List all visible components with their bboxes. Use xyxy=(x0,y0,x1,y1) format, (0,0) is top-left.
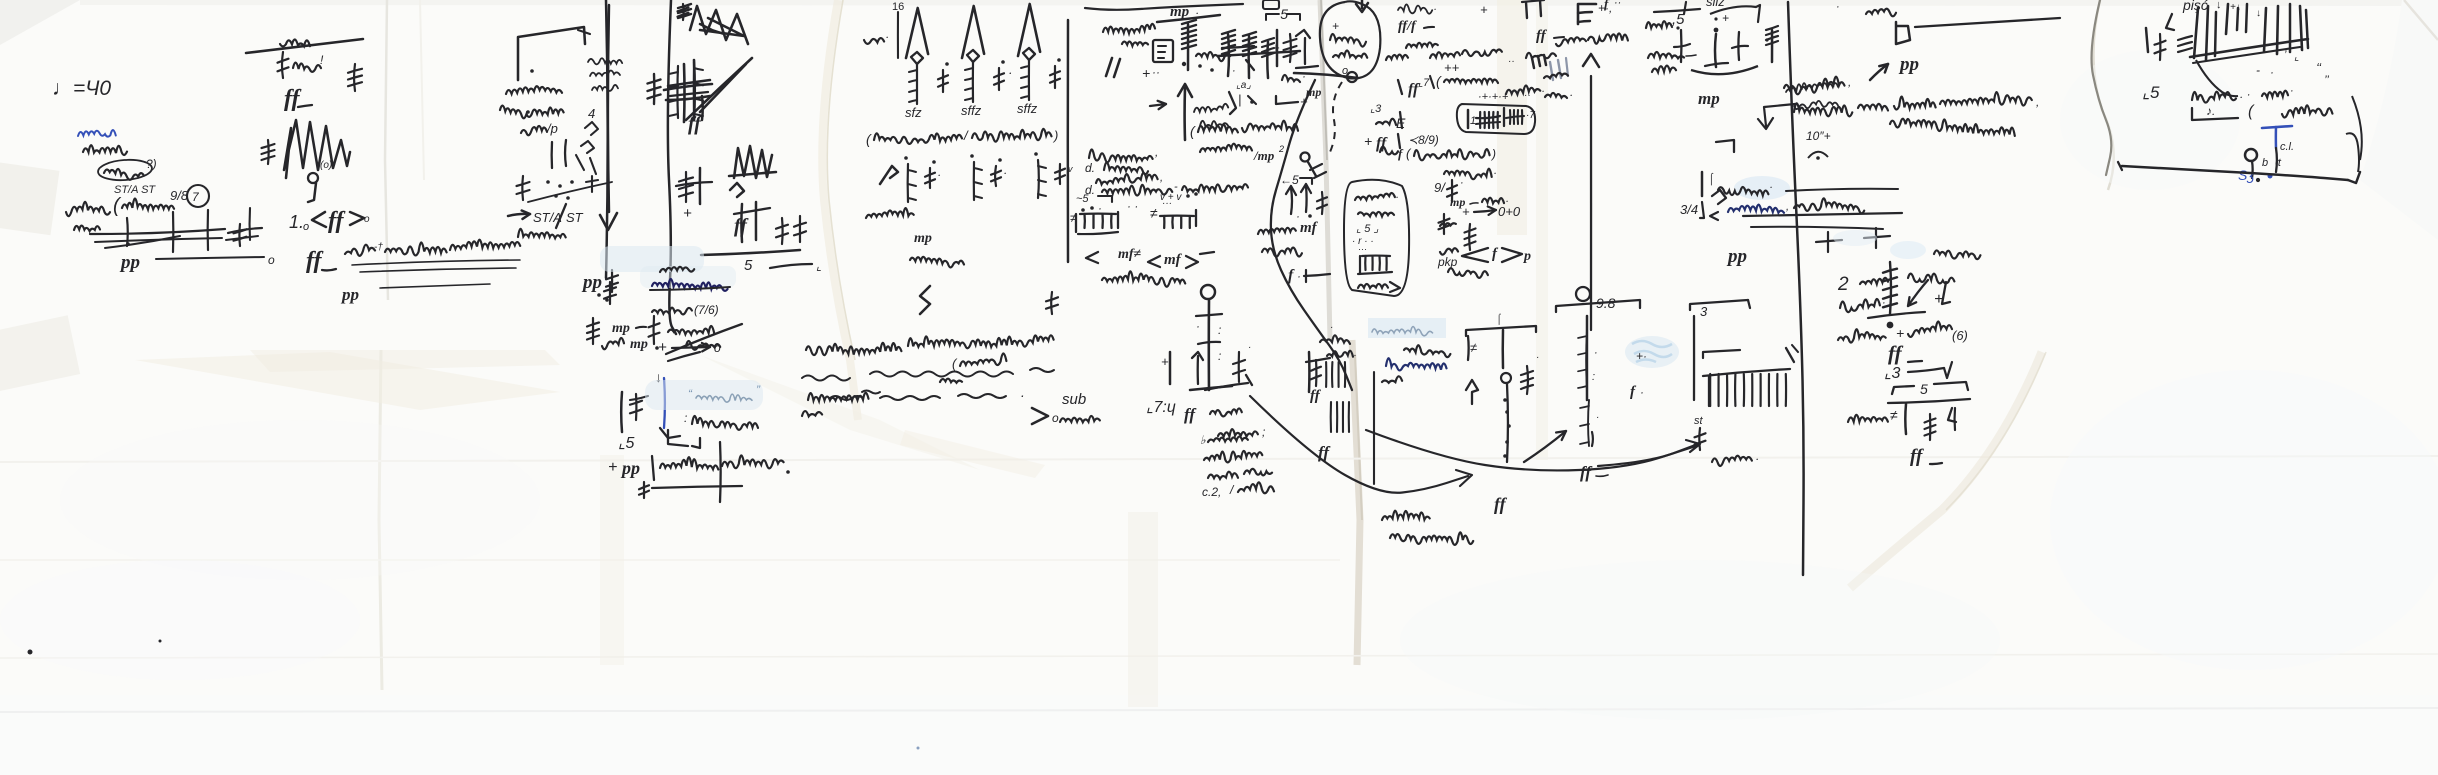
svg-text:ff/f: ff/f xyxy=(1398,19,1417,34)
svg-text:sfz: sfz xyxy=(905,105,922,120)
svg-text:·: · xyxy=(1330,322,1333,333)
svg-text:(7/6): (7/6) xyxy=(694,303,719,317)
svg-text:⌠: ⌠ xyxy=(1708,173,1715,186)
svg-text:⌞7:ɥ: ⌞7:ɥ xyxy=(1146,399,1176,416)
svg-text:··: ·· xyxy=(1524,90,1531,101)
svg-text:♪.: ♪. xyxy=(2206,104,2215,118)
svg-text:,: , xyxy=(1786,201,1789,213)
svg-text:mf: mf xyxy=(1300,220,1319,236)
svg-text:··: ·· xyxy=(1152,65,1160,79)
svg-text:5: 5 xyxy=(1920,381,1928,397)
svg-text:.: . xyxy=(1009,62,1013,77)
svg-text:⌞a⌟: ⌞a⌟ xyxy=(1236,80,1251,91)
svg-text:mf≠: mf≠ xyxy=(1118,247,1142,262)
svg-text:o: o xyxy=(303,221,309,233)
svg-text:++: ++ xyxy=(1444,60,1460,75)
svg-text:·: · xyxy=(1594,347,1598,359)
svg-text:pp: pp xyxy=(1898,54,1919,75)
svg-text:mp: mp xyxy=(630,337,648,352)
svg-text:o: o xyxy=(714,341,721,355)
svg-text:+: + xyxy=(608,459,617,476)
svg-text:pkp: pkp xyxy=(1437,255,1458,269)
svg-text:·: · xyxy=(1020,387,1025,403)
svg-text:·+·+·+: ·+·+·+ xyxy=(1478,91,1509,103)
svg-text:ST/A ST: ST/A ST xyxy=(114,184,156,196)
svg-text:.: . xyxy=(1570,85,1573,99)
svg-text:.: . xyxy=(886,27,889,41)
svg-text:+: + xyxy=(1896,325,1904,341)
svg-text:ST: ST xyxy=(566,210,584,225)
svg-text:mp: mp xyxy=(1698,89,1720,108)
svg-text:10″+: 10″+ xyxy=(1806,129,1831,143)
svg-text:0+0: 0+0 xyxy=(1498,204,1521,219)
svg-text:,: , xyxy=(1160,172,1163,184)
svg-text:···: ··· xyxy=(1358,244,1367,254)
svg-text:·: · xyxy=(2270,65,2274,79)
svg-text:,: , xyxy=(1848,75,1851,89)
svg-text:⌞: ⌞ xyxy=(2294,51,2299,63)
svg-text:1: 1 xyxy=(1470,115,1476,127)
svg-text:,: , xyxy=(2036,95,2039,109)
svg-text:pp: pp xyxy=(620,458,640,478)
svg-text:·: · xyxy=(2290,85,2294,97)
svg-text:;: ; xyxy=(1262,425,1265,439)
svg-text:2: 2 xyxy=(1837,274,1849,295)
svg-text:sub: sub xyxy=(1062,391,1086,408)
svg-text:p: p xyxy=(1523,249,1531,264)
svg-text:9/: 9/ xyxy=(1434,180,1446,195)
svg-text:c.2,: c.2, xyxy=(1202,485,1221,499)
svg-text:·: · xyxy=(1640,385,1644,399)
svg-text:mf: mf xyxy=(1164,252,1183,268)
svg-text:· ·: · · xyxy=(1127,199,1138,213)
svg-text:mp: mp xyxy=(1170,4,1190,20)
svg-text:···: ··· xyxy=(1162,198,1172,209)
svg-text:≠: ≠ xyxy=(1150,205,1158,221)
svg-text:+: + xyxy=(1332,19,1339,33)
svg-text:·: · xyxy=(1196,319,1200,333)
svg-text:+: + xyxy=(1142,65,1150,81)
svg-text:+: + xyxy=(658,339,667,356)
svg-text:·: · xyxy=(1460,177,1464,189)
svg-text:··: ·· xyxy=(1614,0,1621,9)
svg-text:ff: ff xyxy=(328,208,346,234)
svg-text:o: o xyxy=(1052,411,1059,425)
svg-text:1.: 1. xyxy=(289,212,304,232)
svg-text:.: . xyxy=(1434,1,1437,13)
svg-text:⌞5: ⌞5 xyxy=(2142,83,2160,102)
svg-text:+: + xyxy=(683,205,692,222)
svg-text:’’: ’’ xyxy=(2324,73,2329,87)
svg-text:.: . xyxy=(1494,165,1497,177)
svg-text:3: 3 xyxy=(1700,304,1708,319)
svg-text:.: . xyxy=(938,165,941,179)
svg-text:sffz: sffz xyxy=(961,103,982,118)
svg-text:⌠: ⌠ xyxy=(1496,313,1502,325)
svg-text::: : xyxy=(1592,371,1595,383)
svg-text:5: 5 xyxy=(1280,6,1288,22)
svg-text:-: - xyxy=(2256,63,2260,77)
svg-text:3/4: 3/4 xyxy=(1680,202,1698,217)
svg-text:+: + xyxy=(1161,354,1169,369)
svg-text:⌞: ⌞ xyxy=(816,259,822,273)
svg-text:sliz: sliz xyxy=(1706,0,1725,9)
svg-text:ff: ff xyxy=(284,86,302,112)
svg-text:+: + xyxy=(1364,133,1372,149)
svg-text:⌞7: ⌞7 xyxy=(1418,77,1430,89)
svg-text:·: · xyxy=(1232,65,1236,77)
svg-text:⌞ 5 ⌟: ⌞ 5 ⌟ xyxy=(1356,223,1379,235)
svg-text:sffz: sffz xyxy=(1017,101,1038,116)
svg-text::: : xyxy=(1218,323,1221,337)
svg-text:·: · xyxy=(1596,412,1599,423)
svg-text:⌞3: ⌞3 xyxy=(1884,365,1901,382)
svg-text:b: b xyxy=(2262,157,2268,169)
svg-text:ff: ff xyxy=(1888,341,1904,365)
svg-text:·7: ·7 xyxy=(1526,110,1535,121)
svg-text:c.l.: c.l. xyxy=(2280,141,2294,153)
svg-text:.: . xyxy=(1542,83,1545,95)
svg-text:·: · xyxy=(1302,69,1306,83)
svg-text:··: ·· xyxy=(1508,56,1515,67)
svg-text:pişć: pişć xyxy=(2182,0,2208,13)
svg-text:Sʒ: Sʒ xyxy=(2238,167,2255,183)
svg-text:o: o xyxy=(364,214,370,225)
svg-text:. ·: . · xyxy=(2240,87,2251,101)
svg-text:♩=Ч0: ♩=Ч0 xyxy=(52,77,111,100)
svg-text:.: . xyxy=(1354,348,1357,359)
svg-text:·: · xyxy=(1248,342,1251,353)
svg-text:+: + xyxy=(1462,204,1470,219)
svg-text:ff: ff xyxy=(1494,494,1508,514)
svg-text::: : xyxy=(684,411,687,425)
svg-text:♭: ♭ xyxy=(1200,433,1206,447)
svg-text:st: st xyxy=(1694,415,1704,427)
svg-text:·: · xyxy=(1836,1,1840,13)
svg-text:+·: +· xyxy=(1636,349,1647,363)
svg-text:2: 2 xyxy=(1278,144,1284,154)
svg-text:|: | xyxy=(1238,92,1241,107)
svg-text:-†: -† xyxy=(374,242,383,253)
svg-text:5: 5 xyxy=(744,257,753,274)
svg-text:pp: pp xyxy=(581,272,602,293)
svg-text:ff: ff xyxy=(1910,446,1924,467)
svg-text:pp: pp xyxy=(119,252,140,273)
svg-text:d.: d. xyxy=(1085,161,1095,175)
svg-text:.: . xyxy=(1770,179,1773,191)
svg-text::: : xyxy=(1218,349,1221,363)
svg-text:+: + xyxy=(1722,11,1729,25)
svg-text:.: . xyxy=(1196,3,1199,17)
svg-text:≠: ≠ xyxy=(1470,340,1477,355)
svg-text:⌞5: ⌞5 xyxy=(618,435,635,452)
svg-text:≠: ≠ xyxy=(1890,407,1898,423)
svg-text:(6): (6) xyxy=(1952,328,1968,343)
svg-text:mp: mp xyxy=(612,321,630,336)
svg-text:.: . xyxy=(1004,163,1007,177)
svg-text:.: . xyxy=(1756,449,1759,463)
svg-text:⌞3: ⌞3 xyxy=(1370,103,1382,115)
svg-text:(o): (o) xyxy=(320,160,332,171)
svg-text:+↓: +↓ xyxy=(2230,2,2241,13)
svg-text:·: · xyxy=(1297,269,1301,283)
svg-text:↓: ↓ xyxy=(2256,8,2261,19)
svg-text:~5: ~5 xyxy=(1076,193,1089,205)
svg-text:o: o xyxy=(268,253,275,267)
svg-text:mp: mp xyxy=(914,231,932,246)
svg-text:·: · xyxy=(1536,352,1539,363)
svg-text:pp: pp xyxy=(1726,246,1747,267)
svg-text:.: . xyxy=(1396,189,1399,201)
svg-text:≺8/9): ≺8/9) xyxy=(1408,133,1439,147)
svg-text:+: + xyxy=(1480,2,1488,17)
svg-text:≠: ≠ xyxy=(1070,210,1077,225)
svg-text:?): ?) xyxy=(146,157,157,171)
svg-text:←5: ←5 xyxy=(1280,173,1299,187)
svg-text:/p: /p xyxy=(546,121,558,136)
svg-text:/mp: /mp xyxy=(1253,148,1275,163)
svg-text:,: , xyxy=(1155,145,1158,159)
svg-text:↓: ↓ xyxy=(2216,0,2222,11)
svg-text:pp: pp xyxy=(340,285,359,304)
svg-text:4: 4 xyxy=(588,106,595,121)
